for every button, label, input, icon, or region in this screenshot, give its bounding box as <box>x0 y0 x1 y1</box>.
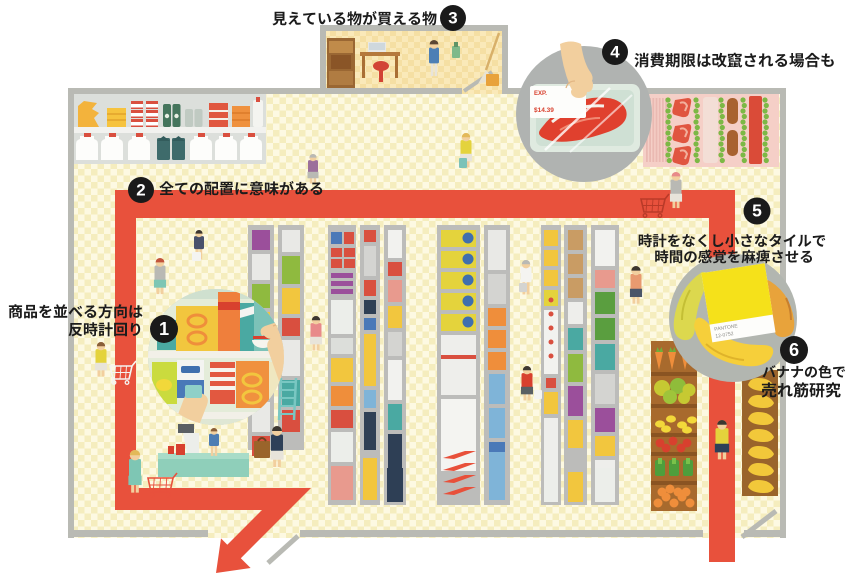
svg-text:$14.39: $14.39 <box>534 107 554 114</box>
svg-text:5: 5 <box>752 201 762 221</box>
svg-text:6: 6 <box>789 340 799 360</box>
svg-text:3: 3 <box>448 8 457 27</box>
svg-text:4: 4 <box>610 42 620 61</box>
svg-text:EXP.: EXP. <box>534 91 547 97</box>
svg-text:1: 1 <box>159 319 169 339</box>
svg-text:2: 2 <box>136 180 145 199</box>
